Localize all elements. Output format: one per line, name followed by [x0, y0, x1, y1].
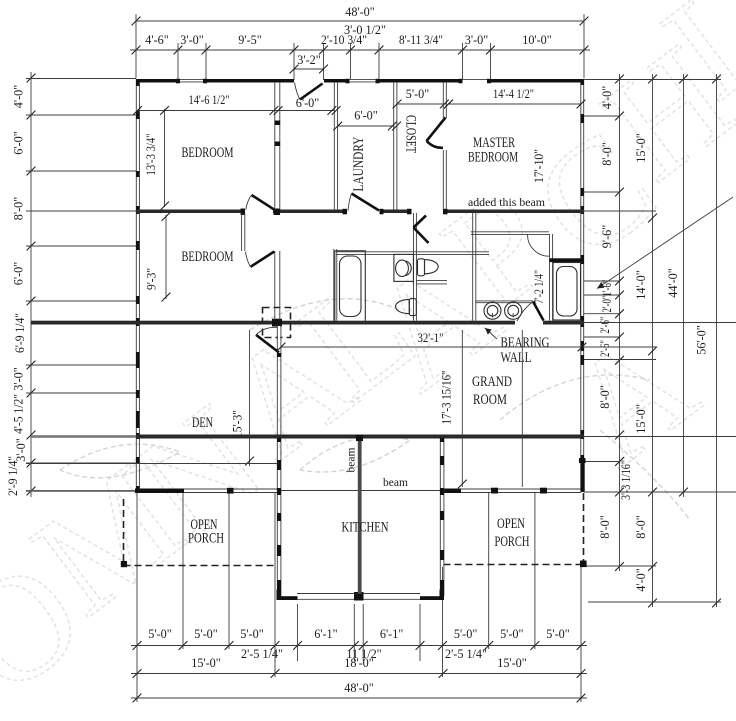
svg-text:beam: beam — [346, 447, 358, 472]
svg-text:7'-2 1/4": 7'-2 1/4" — [532, 270, 546, 304]
svg-text:PORCH: PORCH — [495, 534, 530, 550]
svg-text:4'-5 1/2": 4'-5 1/2" — [12, 394, 26, 434]
svg-text:4'-0": 4'-0" — [634, 568, 648, 591]
svg-text:BEDROOM: BEDROOM — [468, 150, 518, 166]
svg-text:15'-0": 15'-0" — [497, 656, 527, 670]
svg-text:17'-3 15/16": 17'-3 15/16" — [440, 370, 454, 424]
svg-text:17'-10": 17'-10" — [532, 149, 546, 183]
svg-text:5'-0": 5'-0" — [406, 87, 429, 101]
svg-text:3'-0": 3'-0" — [465, 33, 488, 47]
svg-text:WALL: WALL — [501, 350, 532, 366]
svg-text:2'-6": 2'-6" — [598, 340, 612, 357]
svg-text:5'-0": 5'-0" — [546, 627, 569, 641]
svg-text:6'-1": 6'-1" — [380, 627, 403, 641]
svg-text:6'-1": 6'-1" — [314, 627, 337, 641]
svg-text:5'-0": 5'-0" — [500, 627, 523, 641]
svg-text:PORCH: PORCH — [188, 531, 224, 547]
svg-text:3'-0": 3'-0" — [180, 33, 203, 47]
svg-text:14'-0": 14'-0" — [634, 270, 648, 300]
svg-text:9'-5": 9'-5" — [238, 33, 261, 47]
svg-text:2'-5 1/4": 2'-5 1/4" — [445, 647, 487, 661]
svg-text:6'-0": 6'-0" — [12, 131, 26, 154]
svg-text:5'-0": 5'-0" — [240, 627, 263, 641]
svg-text:15'-0": 15'-0" — [634, 404, 648, 434]
svg-text:LAUNDRY: LAUNDRY — [351, 137, 367, 192]
svg-text:14'-6 1/2": 14'-6 1/2" — [189, 93, 230, 107]
svg-text:44'-0": 44'-0" — [666, 268, 680, 298]
svg-text:2'-5 1/4": 2'-5 1/4" — [241, 647, 283, 661]
svg-text:8'-0": 8'-0" — [598, 385, 612, 408]
svg-text:KITCHEN: KITCHEN — [342, 520, 389, 536]
svg-text:ROOM: ROOM — [473, 392, 507, 408]
svg-text:DEN: DEN — [192, 415, 213, 431]
svg-text:6'-0": 6'-0" — [12, 262, 26, 285]
svg-text:2'-6": 2'-6" — [598, 316, 612, 333]
svg-text:3'-0 1/2": 3'-0 1/2" — [344, 23, 386, 37]
svg-text:8'-11 3/4": 8'-11 3/4" — [399, 33, 443, 47]
svg-text:56'-0": 56'-0" — [695, 325, 709, 355]
svg-text:3'-3 1/16": 3'-3 1/16" — [619, 460, 633, 500]
svg-text:4'-0": 4'-0" — [12, 85, 26, 108]
svg-text:8'-0": 8'-0" — [600, 142, 614, 165]
svg-text:9'-3": 9'-3" — [145, 268, 159, 290]
svg-text:CLOSET: CLOSET — [403, 115, 419, 153]
svg-text:5'-0": 5'-0" — [148, 627, 171, 641]
svg-text:10'-0": 10'-0" — [522, 33, 552, 47]
svg-text:OPEN: OPEN — [497, 516, 525, 532]
svg-text:32'-1": 32'-1" — [418, 331, 444, 345]
svg-text:14'-4 1/2": 14'-4 1/2" — [493, 87, 534, 101]
svg-text:beam: beam — [383, 477, 408, 489]
svg-text:2'-0": 2'-0" — [600, 295, 614, 312]
svg-text:4'-0": 4'-0" — [600, 86, 614, 109]
svg-text:added this beam: added this beam — [468, 197, 545, 209]
svg-text:13'-3 3/4": 13'-3 3/4" — [144, 133, 158, 175]
svg-text:3'-0": 3'-0" — [12, 367, 26, 390]
svg-text:18'-0": 18'-0" — [344, 656, 374, 670]
svg-text:48'-0": 48'-0" — [345, 5, 375, 19]
svg-text:GRAND: GRAND — [472, 374, 512, 390]
svg-text:8'-0": 8'-0" — [634, 515, 648, 538]
svg-text:6'-9 1/4": 6'-9 1/4" — [13, 313, 27, 353]
svg-text:BEDROOM: BEDROOM — [182, 145, 234, 161]
svg-text:3'-2": 3'-2" — [297, 53, 320, 67]
svg-text:15'-0": 15'-0" — [634, 133, 648, 163]
svg-text:BEARING: BEARING — [501, 335, 550, 351]
svg-text:15'-0": 15'-0" — [191, 656, 221, 670]
svg-text:5'-0": 5'-0" — [194, 627, 217, 641]
svg-text:6'-0": 6'-0" — [354, 109, 377, 123]
svg-text:9'-6": 9'-6" — [600, 225, 614, 248]
svg-text:48'-0": 48'-0" — [344, 681, 374, 695]
svg-text:BEDROOM: BEDROOM — [182, 249, 234, 265]
svg-text:2'-9 1/4": 2'-9 1/4" — [6, 456, 20, 496]
svg-text:4'-6": 4'-6" — [145, 33, 168, 47]
svg-text:15'-3": 15'-3" — [231, 410, 245, 438]
svg-text:8'-0": 8'-0" — [12, 197, 26, 220]
svg-text:8'-0": 8'-0" — [598, 515, 612, 538]
svg-text:6'-0": 6'-0" — [296, 96, 319, 110]
svg-text:5'-0": 5'-0" — [454, 627, 477, 641]
